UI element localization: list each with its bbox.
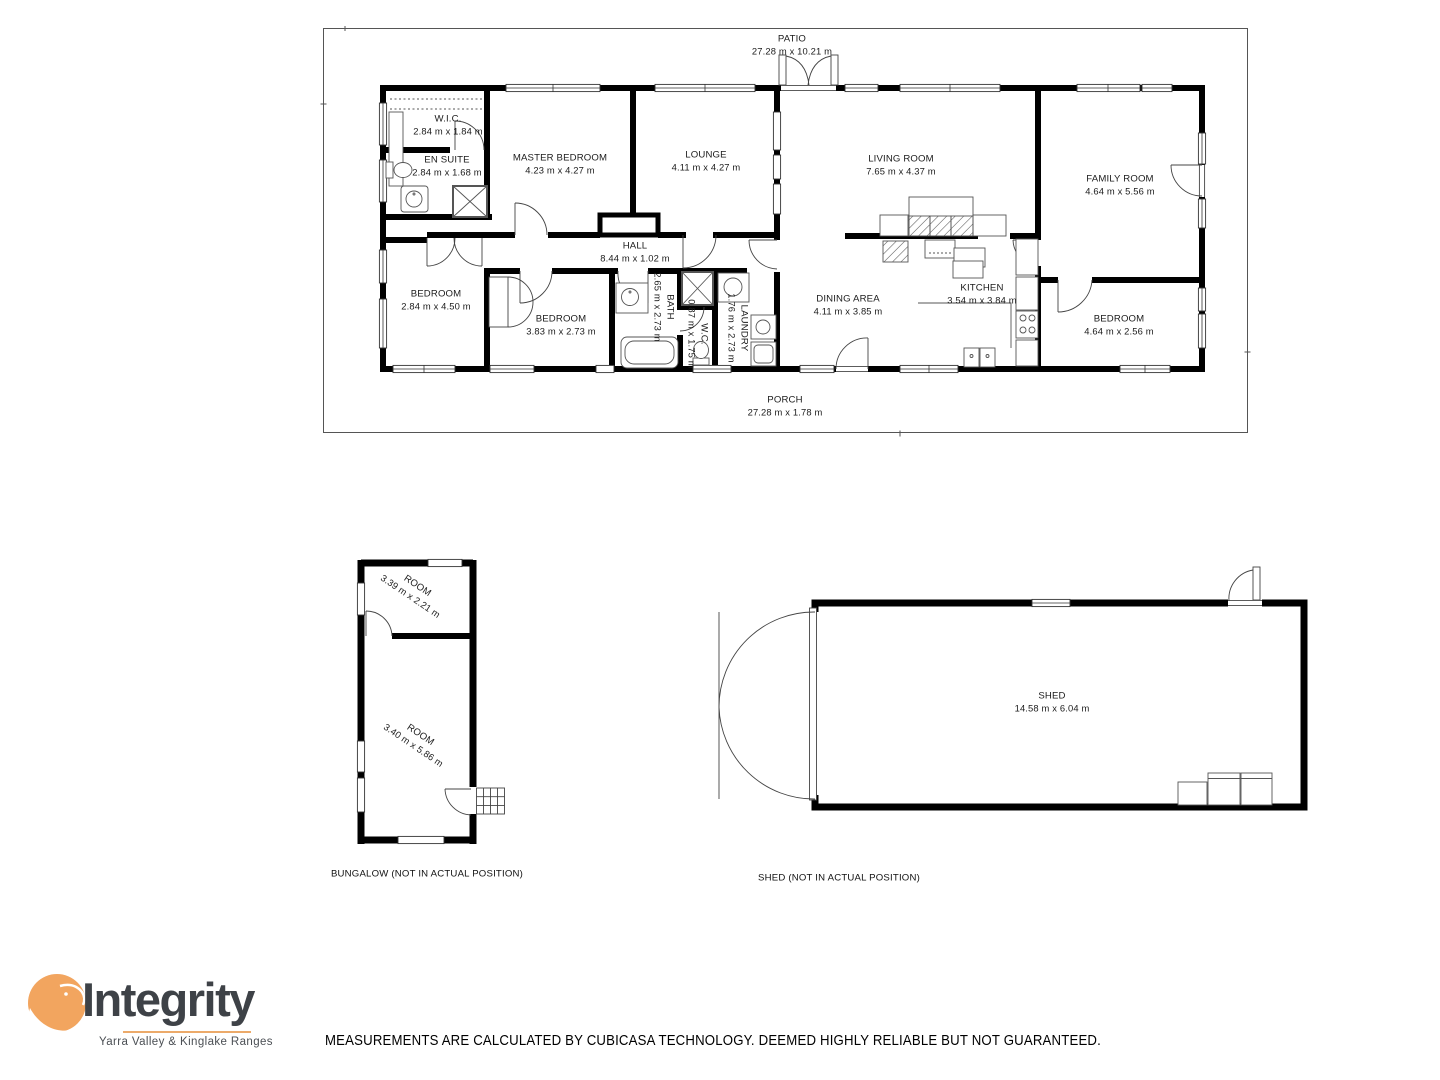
room-name: LAUNDRY [738,293,750,362]
window-midlines [383,84,1202,372]
room-dims: 2.84 m x 1.68 m [412,166,481,178]
brand-underline [123,1031,251,1033]
label-patio: PATIO 27.28 m x 10.21 m [752,34,832,57]
integrity-lion-icon [28,974,90,1037]
room-name: PORCH [748,395,823,407]
room-dims: 4.11 m x 3.85 m [814,305,883,317]
room-dims: 4.23 m x 4.27 m [513,164,607,176]
label-wic: W.I.C. 2.84 m x 1.84 m [413,114,482,137]
room-dims: 8.44 m x 1.02 m [600,252,669,264]
label-kitchen: KITCHEN 3.54 m x 3.84 m [947,283,1016,306]
room-dims: 4.64 m x 2.56 m [1084,325,1153,337]
room-name: EN SUITE [412,155,481,167]
room-dims: 27.28 m x 10.21 m [752,45,832,57]
room-name: W.C. [698,299,710,368]
room-name: SHED [1015,691,1090,703]
room-name: KITCHEN [947,283,1016,295]
label-bedroom-mid: BEDROOM 3.83 m x 2.73 m [526,314,595,337]
room-dims: 1.76 m x 2.73 m [727,293,739,362]
label-wc: W.C. 0.87 m x 1.75 m [687,299,710,368]
bungalow-caption: BUNGALOW (NOT IN ACTUAL POSITION) [331,869,523,880]
room-name: BEDROOM [401,289,470,301]
brand-tagline: Yarra Valley & Kinglake Ranges [99,1036,273,1048]
shed-caption: SHED (NOT IN ACTUAL POSITION) [758,873,920,884]
label-shed: SHED 14.58 m x 6.04 m [1015,691,1090,714]
label-dining-area: DINING AREA 4.11 m x 3.85 m [814,294,883,317]
room-name: LIVING ROOM [866,154,935,166]
label-bedroom-right: BEDROOM 4.64 m x 2.56 m [1084,314,1153,337]
room-dims: 7.65 m x 4.37 m [866,165,935,177]
shed-furniture [1178,773,1272,805]
label-bath: BATH 2.65 m x 2.73 m [653,272,676,341]
room-dims: 3.83 m x 2.73 m [526,325,595,337]
room-name: W.I.C. [413,114,482,126]
room-dims: 0.87 m x 1.75 m [687,299,699,368]
room-name: BEDROOM [1084,314,1153,326]
hall-closet [600,215,658,235]
label-master-bedroom: MASTER BEDROOM 4.23 m x 4.27 m [513,153,607,176]
room-dims: 3.54 m x 3.84 m [947,294,1016,306]
label-hall: HALL 8.44 m x 1.02 m [600,241,669,264]
room-dims: 4.64 m x 5.56 m [1085,185,1154,197]
room-name: HALL [600,241,669,253]
disclaimer-text: MEASUREMENTS ARE CALCULATED BY CUBICASA … [325,1032,1101,1049]
label-family-room: FAMILY ROOM 4.64 m x 5.56 m [1085,174,1154,197]
brand-wordmark: Integrity [82,972,254,1027]
bungalow-doors [366,611,505,815]
windows-main [379,84,1205,372]
label-living-room: LIVING ROOM 7.65 m x 4.37 m [866,154,935,177]
room-dims: 2.84 m x 4.50 m [401,300,470,312]
label-lounge: LOUNGE 4.11 m x 4.27 m [672,150,741,173]
floor-plan-page: { "plan": { "rooms": { "patio": {"name":… [0,0,1440,1080]
label-porch: PORCH 27.28 m x 1.78 m [748,395,823,418]
room-name: DINING AREA [814,294,883,306]
room-name: FAMILY ROOM [1085,174,1154,186]
room-dims: 27.28 m x 1.78 m [748,406,823,418]
room-dims: 2.84 m x 1.84 m [413,125,482,137]
room-dims: 4.11 m x 4.27 m [672,161,741,173]
label-bedroom-left: BEDROOM 2.84 m x 4.50 m [401,289,470,312]
room-name: MASTER BEDROOM [513,153,607,165]
room-name: BEDROOM [526,314,595,326]
room-dims: 14.58 m x 6.04 m [1015,702,1090,714]
label-laundry: LAUNDRY 1.76 m x 2.73 m [727,293,750,362]
label-ensuite: EN SUITE 2.84 m x 1.68 m [412,155,481,178]
room-name: PATIO [752,34,832,46]
room-name: LOUNGE [672,150,741,162]
room-name: BATH [664,272,676,341]
room-dims: 2.65 m x 2.73 m [653,272,665,341]
